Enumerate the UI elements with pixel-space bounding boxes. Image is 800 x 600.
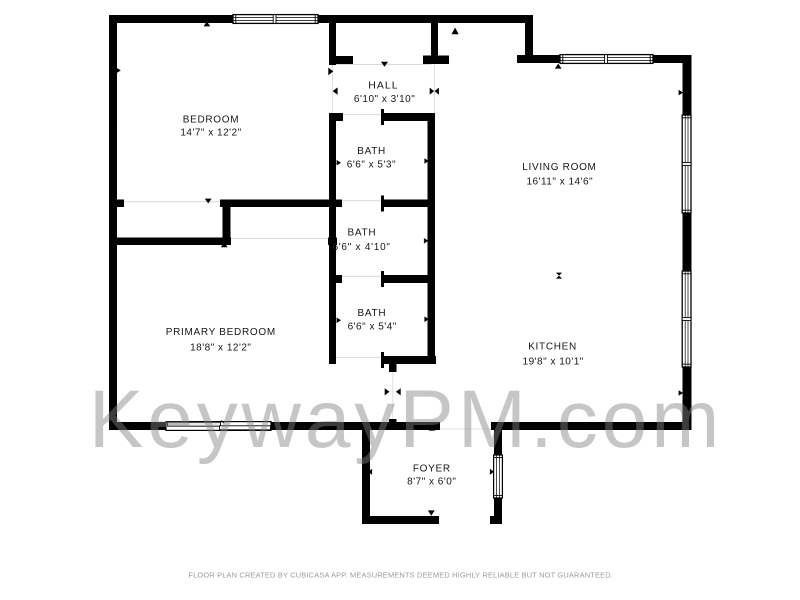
svg-text:8'7" x 6'0": 8'7" x 6'0" bbox=[407, 476, 456, 487]
svg-text:HALL: HALL bbox=[368, 80, 398, 92]
svg-text:6'10" x 3'10": 6'10" x 3'10" bbox=[354, 94, 415, 105]
svg-text:BATH: BATH bbox=[348, 227, 377, 238]
svg-text:6'6" x 4'10": 6'6" x 4'10" bbox=[332, 242, 390, 253]
svg-text:FLOOR PLAN CREATED BY CUBICASA: FLOOR PLAN CREATED BY CUBICASA APP. MEAS… bbox=[188, 570, 613, 579]
svg-text:LIVING ROOM: LIVING ROOM bbox=[522, 162, 596, 173]
svg-text:BEDROOM: BEDROOM bbox=[183, 114, 240, 125]
svg-text:14'7" x 12'2": 14'7" x 12'2" bbox=[180, 127, 241, 138]
svg-text:PRIMARY BEDROOM: PRIMARY BEDROOM bbox=[166, 327, 276, 338]
svg-text:19'8" x 10'1": 19'8" x 10'1" bbox=[523, 357, 584, 368]
svg-text:KITCHEN: KITCHEN bbox=[528, 342, 577, 353]
svg-text:BATH: BATH bbox=[358, 308, 387, 319]
svg-text:KeywayPM.com: KeywayPM.com bbox=[89, 374, 724, 465]
svg-text:BATH: BATH bbox=[357, 146, 386, 157]
svg-text:6'6" x 5'3": 6'6" x 5'3" bbox=[347, 160, 396, 171]
svg-text:16'11" x 14'6": 16'11" x 14'6" bbox=[526, 176, 593, 187]
svg-text:18'8" x 12'2": 18'8" x 12'2" bbox=[190, 343, 251, 354]
svg-text:6'6" x 5'4": 6'6" x 5'4" bbox=[348, 322, 397, 333]
